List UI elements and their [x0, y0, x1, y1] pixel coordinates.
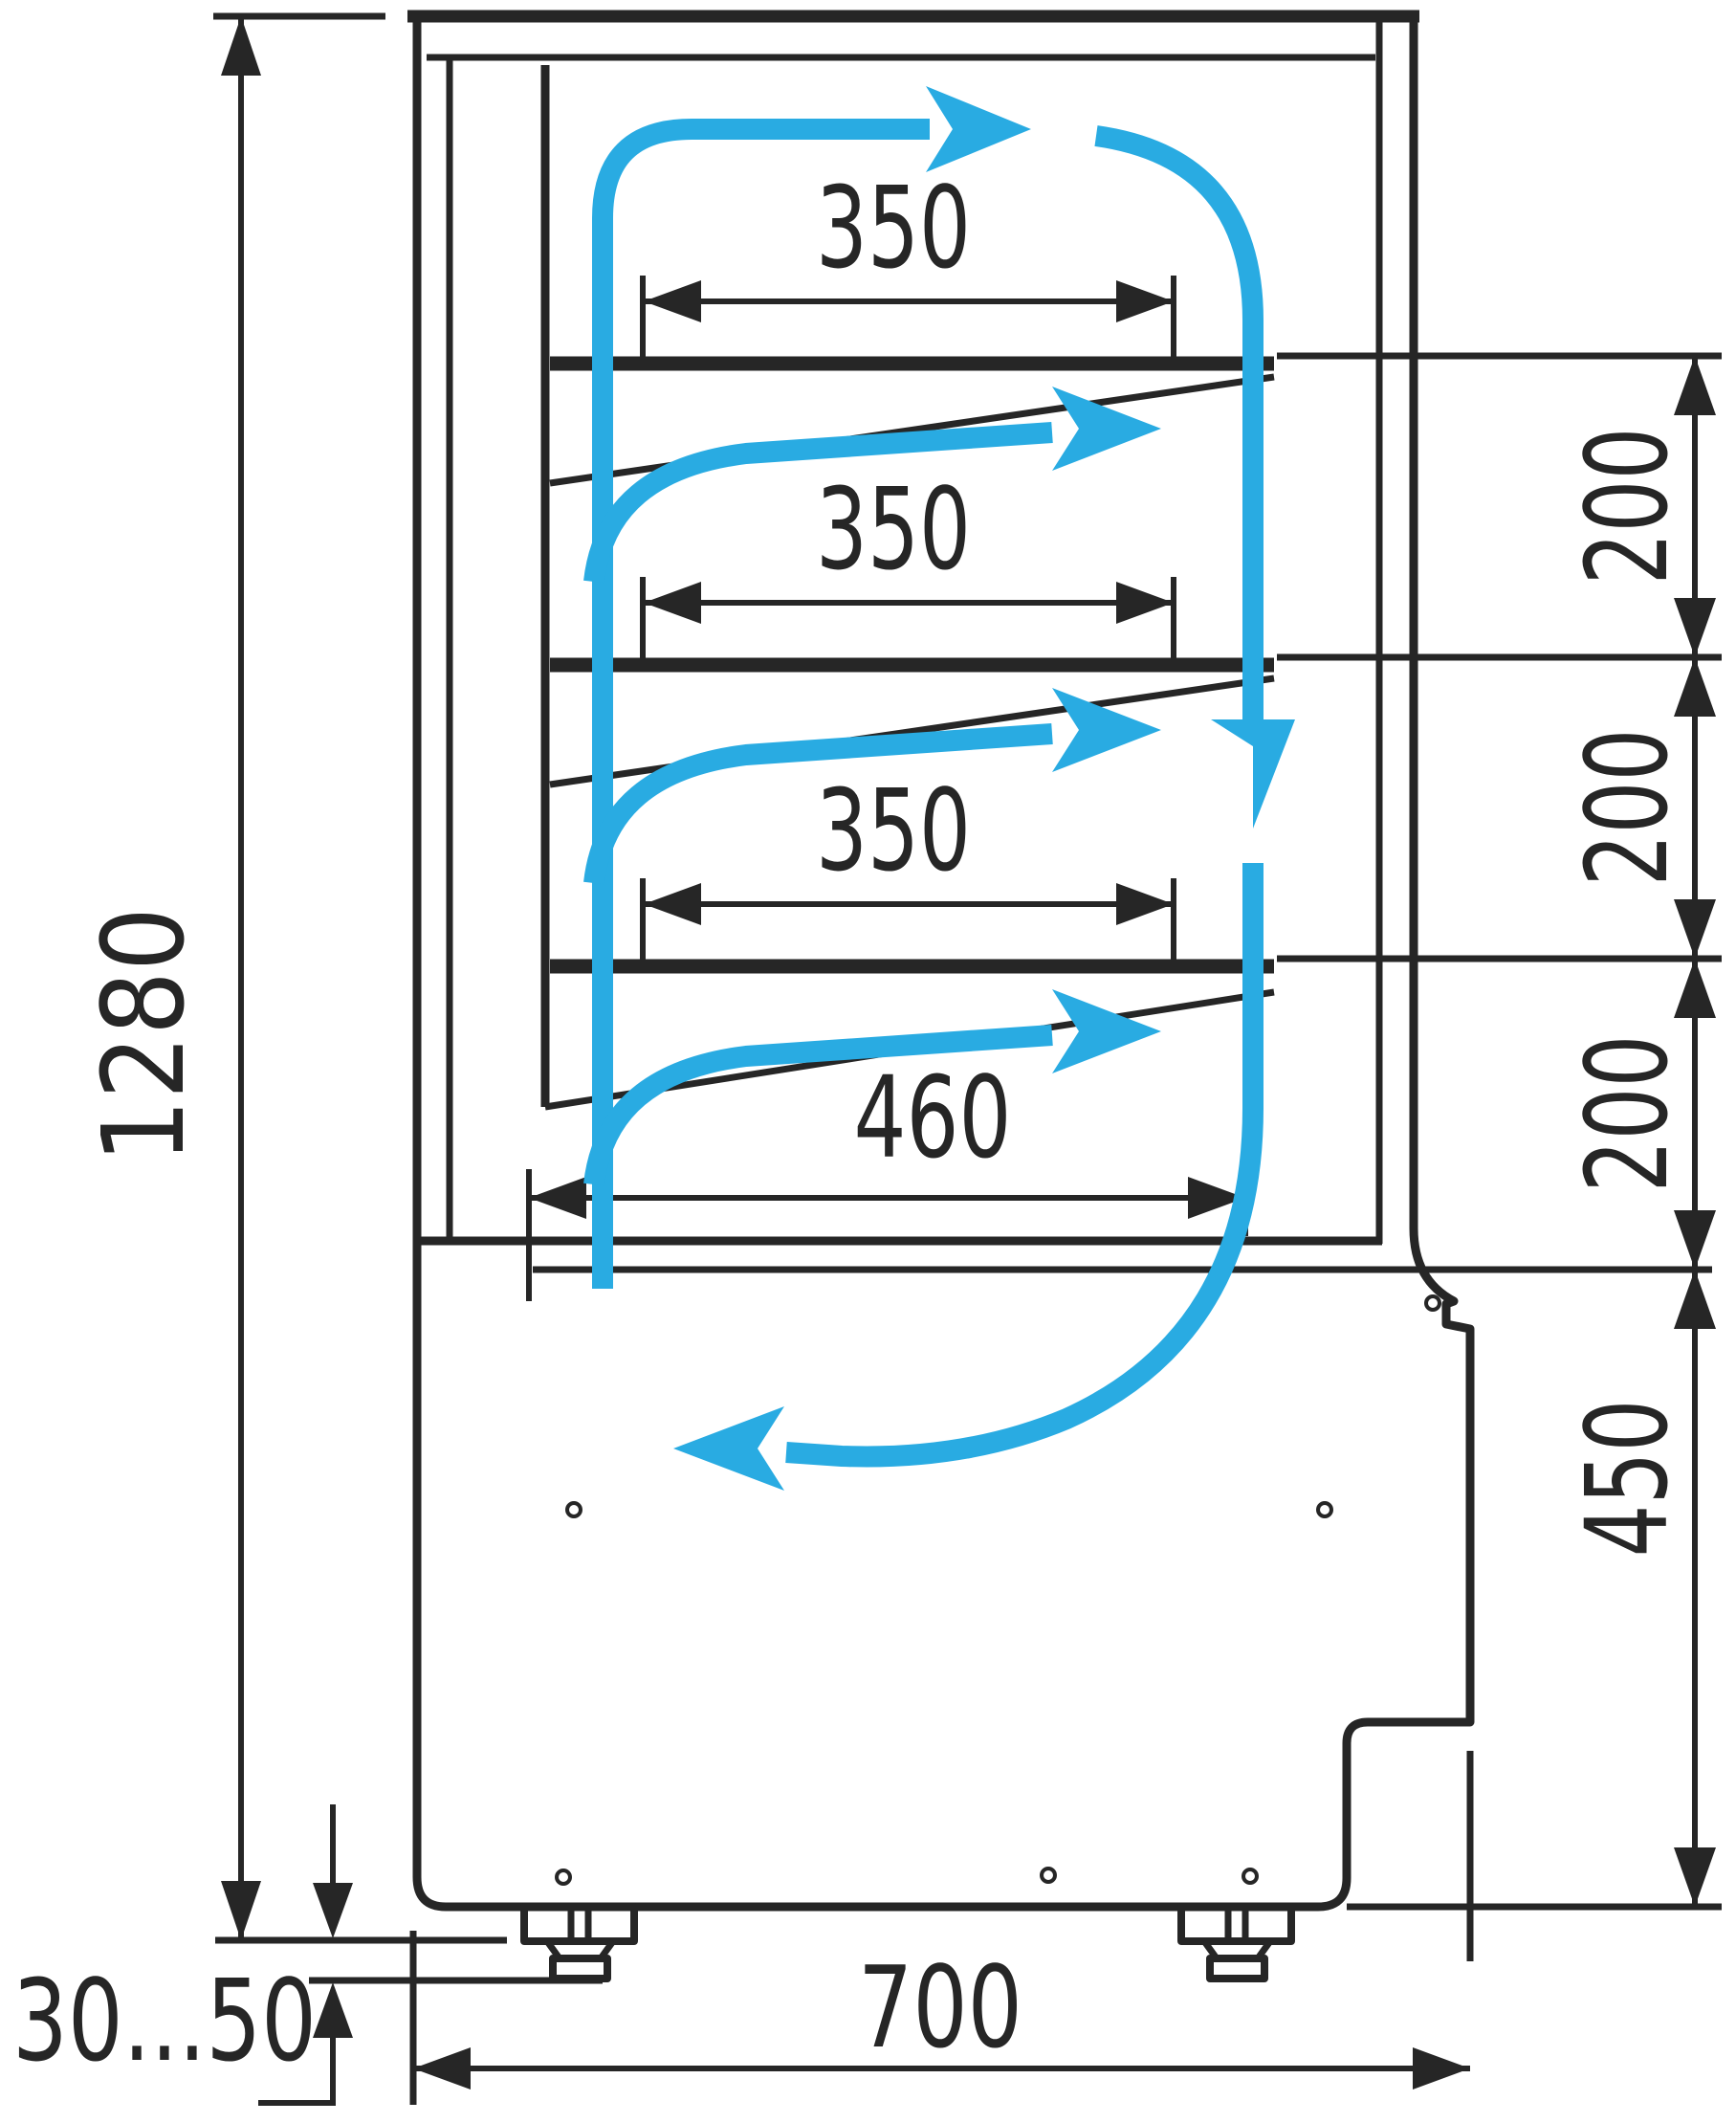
- airflow-arrow-return-icon: [673, 1406, 784, 1491]
- dim-shelf-depth-3: 350: [643, 764, 1174, 961]
- dim-overall-height: 1280: [77, 16, 385, 1940]
- dim-gap-2: 200: [1561, 657, 1716, 959]
- dim-label-depth: 700: [858, 1941, 1022, 2073]
- dim-label-base-height: 450: [1561, 1400, 1693, 1558]
- drawing-page: 1280 350 350 350: [0, 0, 1736, 2123]
- dim-gap-1: 200: [1561, 356, 1716, 657]
- airflow-arrow-shelf-3-icon: [1052, 989, 1161, 1073]
- dim-label-gap-3: 200: [1561, 1035, 1693, 1193]
- foot-left: [524, 1907, 634, 1979]
- dim-gap-3: 200: [1561, 959, 1716, 1270]
- foot-right: [1181, 1907, 1291, 1979]
- dim-label-overall-height: 1280: [77, 907, 209, 1163]
- dim-label-shelf-1: 350: [816, 162, 971, 294]
- dim-shelf-depth-2: 350: [643, 463, 1174, 659]
- dimensions: 1280 350 350 350: [12, 16, 1722, 2105]
- dim-label-gap-1: 200: [1561, 428, 1693, 586]
- dim-label-shelf-2: 350: [816, 463, 971, 595]
- dim-label-feet-range: 30...50: [12, 1955, 317, 2087]
- display-case-section-drawing: 1280 350 350 350: [0, 0, 1736, 2123]
- dim-base-height: 450: [1561, 1270, 1716, 1907]
- dim-label-deck: 460: [854, 1051, 1012, 1183]
- dim-label-gap-2: 200: [1561, 729, 1693, 887]
- dim-shelf-depth-1: 350: [643, 162, 1174, 358]
- airflow-arrow-top-icon: [926, 86, 1031, 172]
- dim-label-shelf-3: 350: [816, 764, 971, 896]
- airflow-arrow-down-icon: [1211, 719, 1295, 829]
- dim-feet-range: 30...50: [12, 1804, 353, 2103]
- panel-screws: [557, 1296, 1439, 1884]
